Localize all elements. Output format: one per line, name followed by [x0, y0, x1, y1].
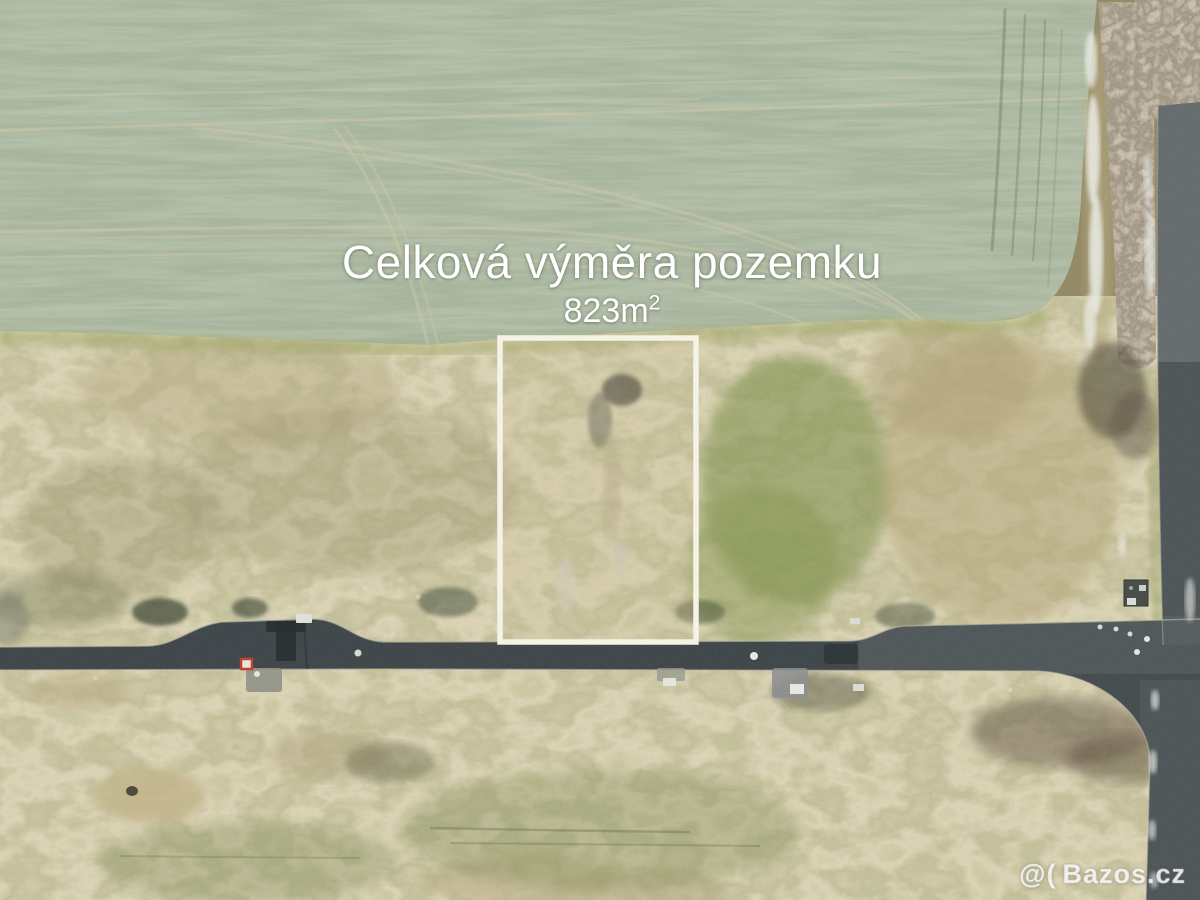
listing-photo: Celková výměra pozemku 823m2 @(Bazos.cz — [0, 0, 1200, 900]
photo-grain-overlay — [0, 0, 1200, 900]
aerial-photo-scene — [0, 0, 1200, 900]
